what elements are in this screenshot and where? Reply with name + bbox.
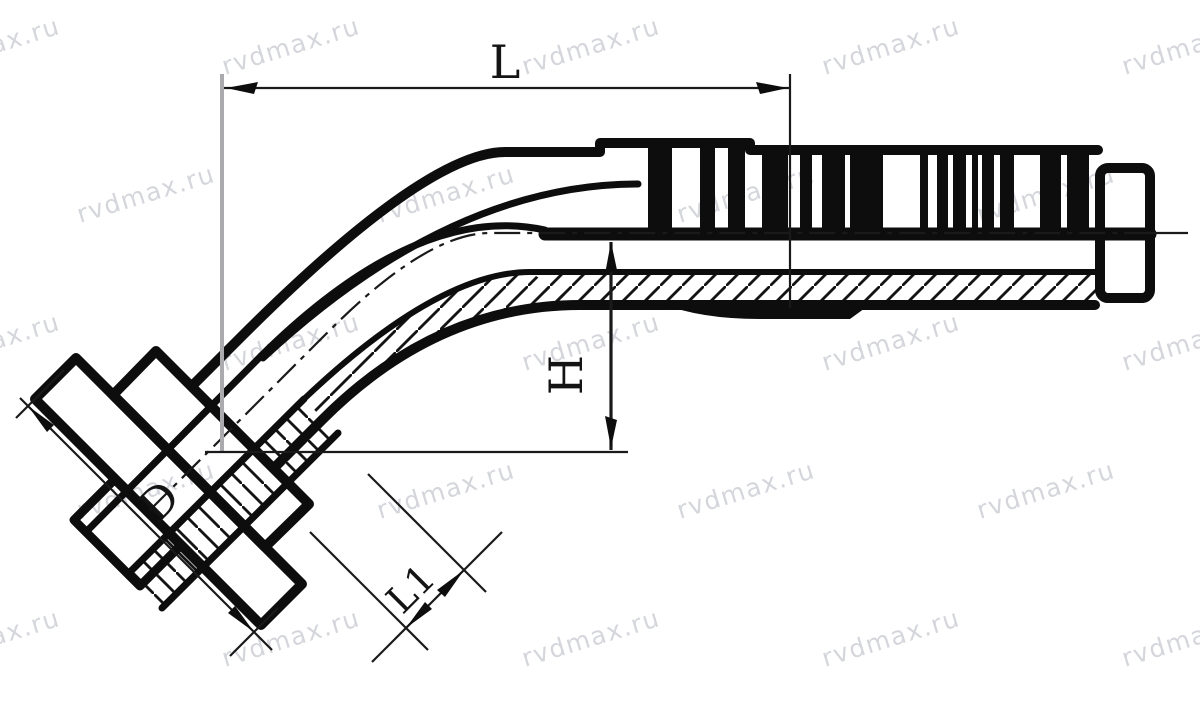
arrow-H-bottom: [605, 416, 617, 448]
watermark-text: rvdmax.ru: [818, 11, 963, 81]
watermark-text: rvdmax.ru: [518, 603, 663, 673]
watermark-text: rvdmax.ru: [518, 11, 663, 81]
ferrule-skirt: [660, 303, 872, 319]
dim-label-L1: L1: [378, 556, 444, 622]
arrow-L1-right: [437, 570, 464, 597]
watermark-text: rvdmax.ru: [373, 455, 518, 525]
watermark-text: rvdmax.ru: [218, 11, 363, 81]
watermark-text: rvdmax.ru: [1118, 11, 1200, 81]
arrow-L-right: [756, 82, 788, 94]
watermark-text: rvdmax.ru: [673, 455, 818, 525]
dim-label-L: L: [490, 35, 521, 89]
watermark-text: rvdmax.ru: [1118, 603, 1200, 673]
drawing-canvas: rvdmax.rurvdmax.rurvdmax.rurvdmax.rurvdm…: [0, 0, 1200, 720]
arrow-L-left: [226, 82, 258, 94]
fitting-technical-drawing: rvdmax.rurvdmax.rurvdmax.rurvdmax.rurvdm…: [0, 0, 1200, 720]
watermark-text: rvdmax.ru: [0, 11, 63, 81]
arrow-H-top: [605, 242, 617, 274]
dim-label-H: H: [539, 355, 593, 395]
watermark-text: rvdmax.ru: [73, 159, 218, 229]
watermark-text: rvdmax.ru: [973, 455, 1118, 525]
watermark-text: rvdmax.ru: [0, 603, 63, 673]
watermark-text: rvdmax.ru: [673, 159, 818, 229]
hatch-hose-tail-wall: [545, 274, 1100, 304]
watermark-text: rvdmax.ru: [1118, 307, 1200, 377]
watermark-text: rvdmax.ru: [818, 603, 963, 673]
watermark-text: rvdmax.ru: [0, 307, 63, 377]
